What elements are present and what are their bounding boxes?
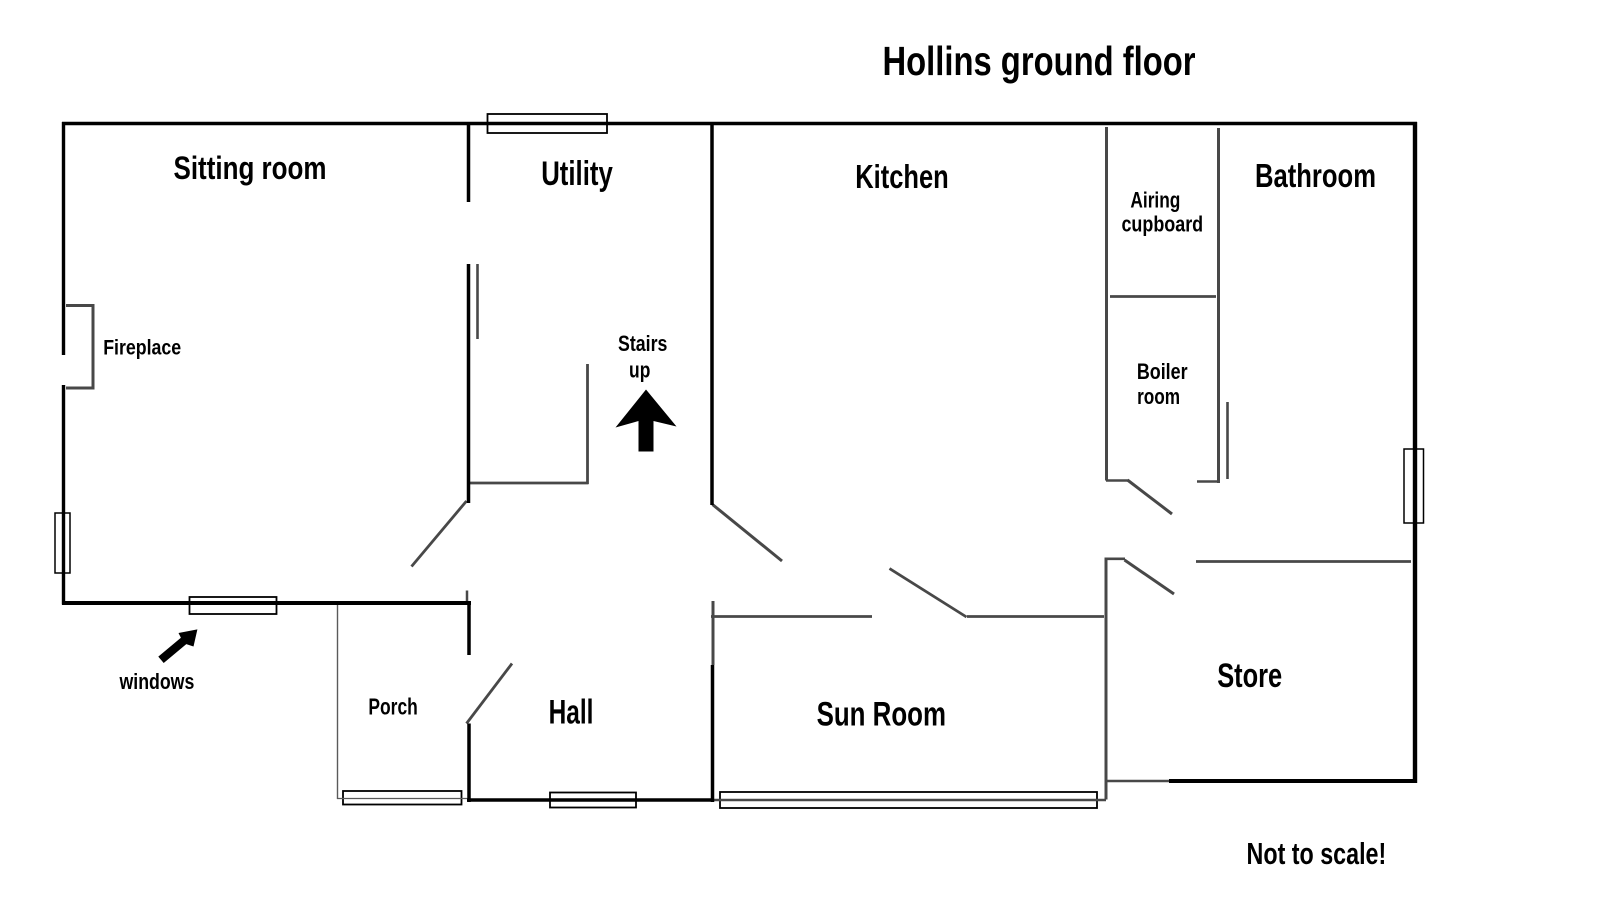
svg-text:Store: Store	[1217, 657, 1282, 695]
svg-text:Bathroom: Bathroom	[1255, 157, 1376, 194]
svg-text:Fireplace: Fireplace	[103, 336, 181, 360]
svg-text:Sun Room: Sun Room	[817, 695, 946, 733]
svg-text:Boiler: Boiler	[1137, 359, 1188, 384]
svg-text:Porch: Porch	[368, 694, 417, 720]
svg-text:up: up	[629, 358, 650, 383]
svg-text:Stairs: Stairs	[618, 331, 667, 356]
svg-text:Sitting room: Sitting room	[174, 150, 327, 186]
svg-text:cupboard: cupboard	[1121, 211, 1203, 236]
svg-text:Not to scale!: Not to scale!	[1247, 837, 1387, 871]
svg-text:room: room	[1137, 384, 1180, 409]
svg-text:Kitchen: Kitchen	[855, 158, 949, 195]
svg-text:Hall: Hall	[549, 693, 594, 731]
svg-text:Airing: Airing	[1130, 188, 1180, 213]
svg-text:Hollins ground floor: Hollins ground floor	[883, 38, 1196, 84]
svg-text:windows: windows	[119, 669, 195, 694]
svg-text:Utility: Utility	[541, 155, 613, 193]
